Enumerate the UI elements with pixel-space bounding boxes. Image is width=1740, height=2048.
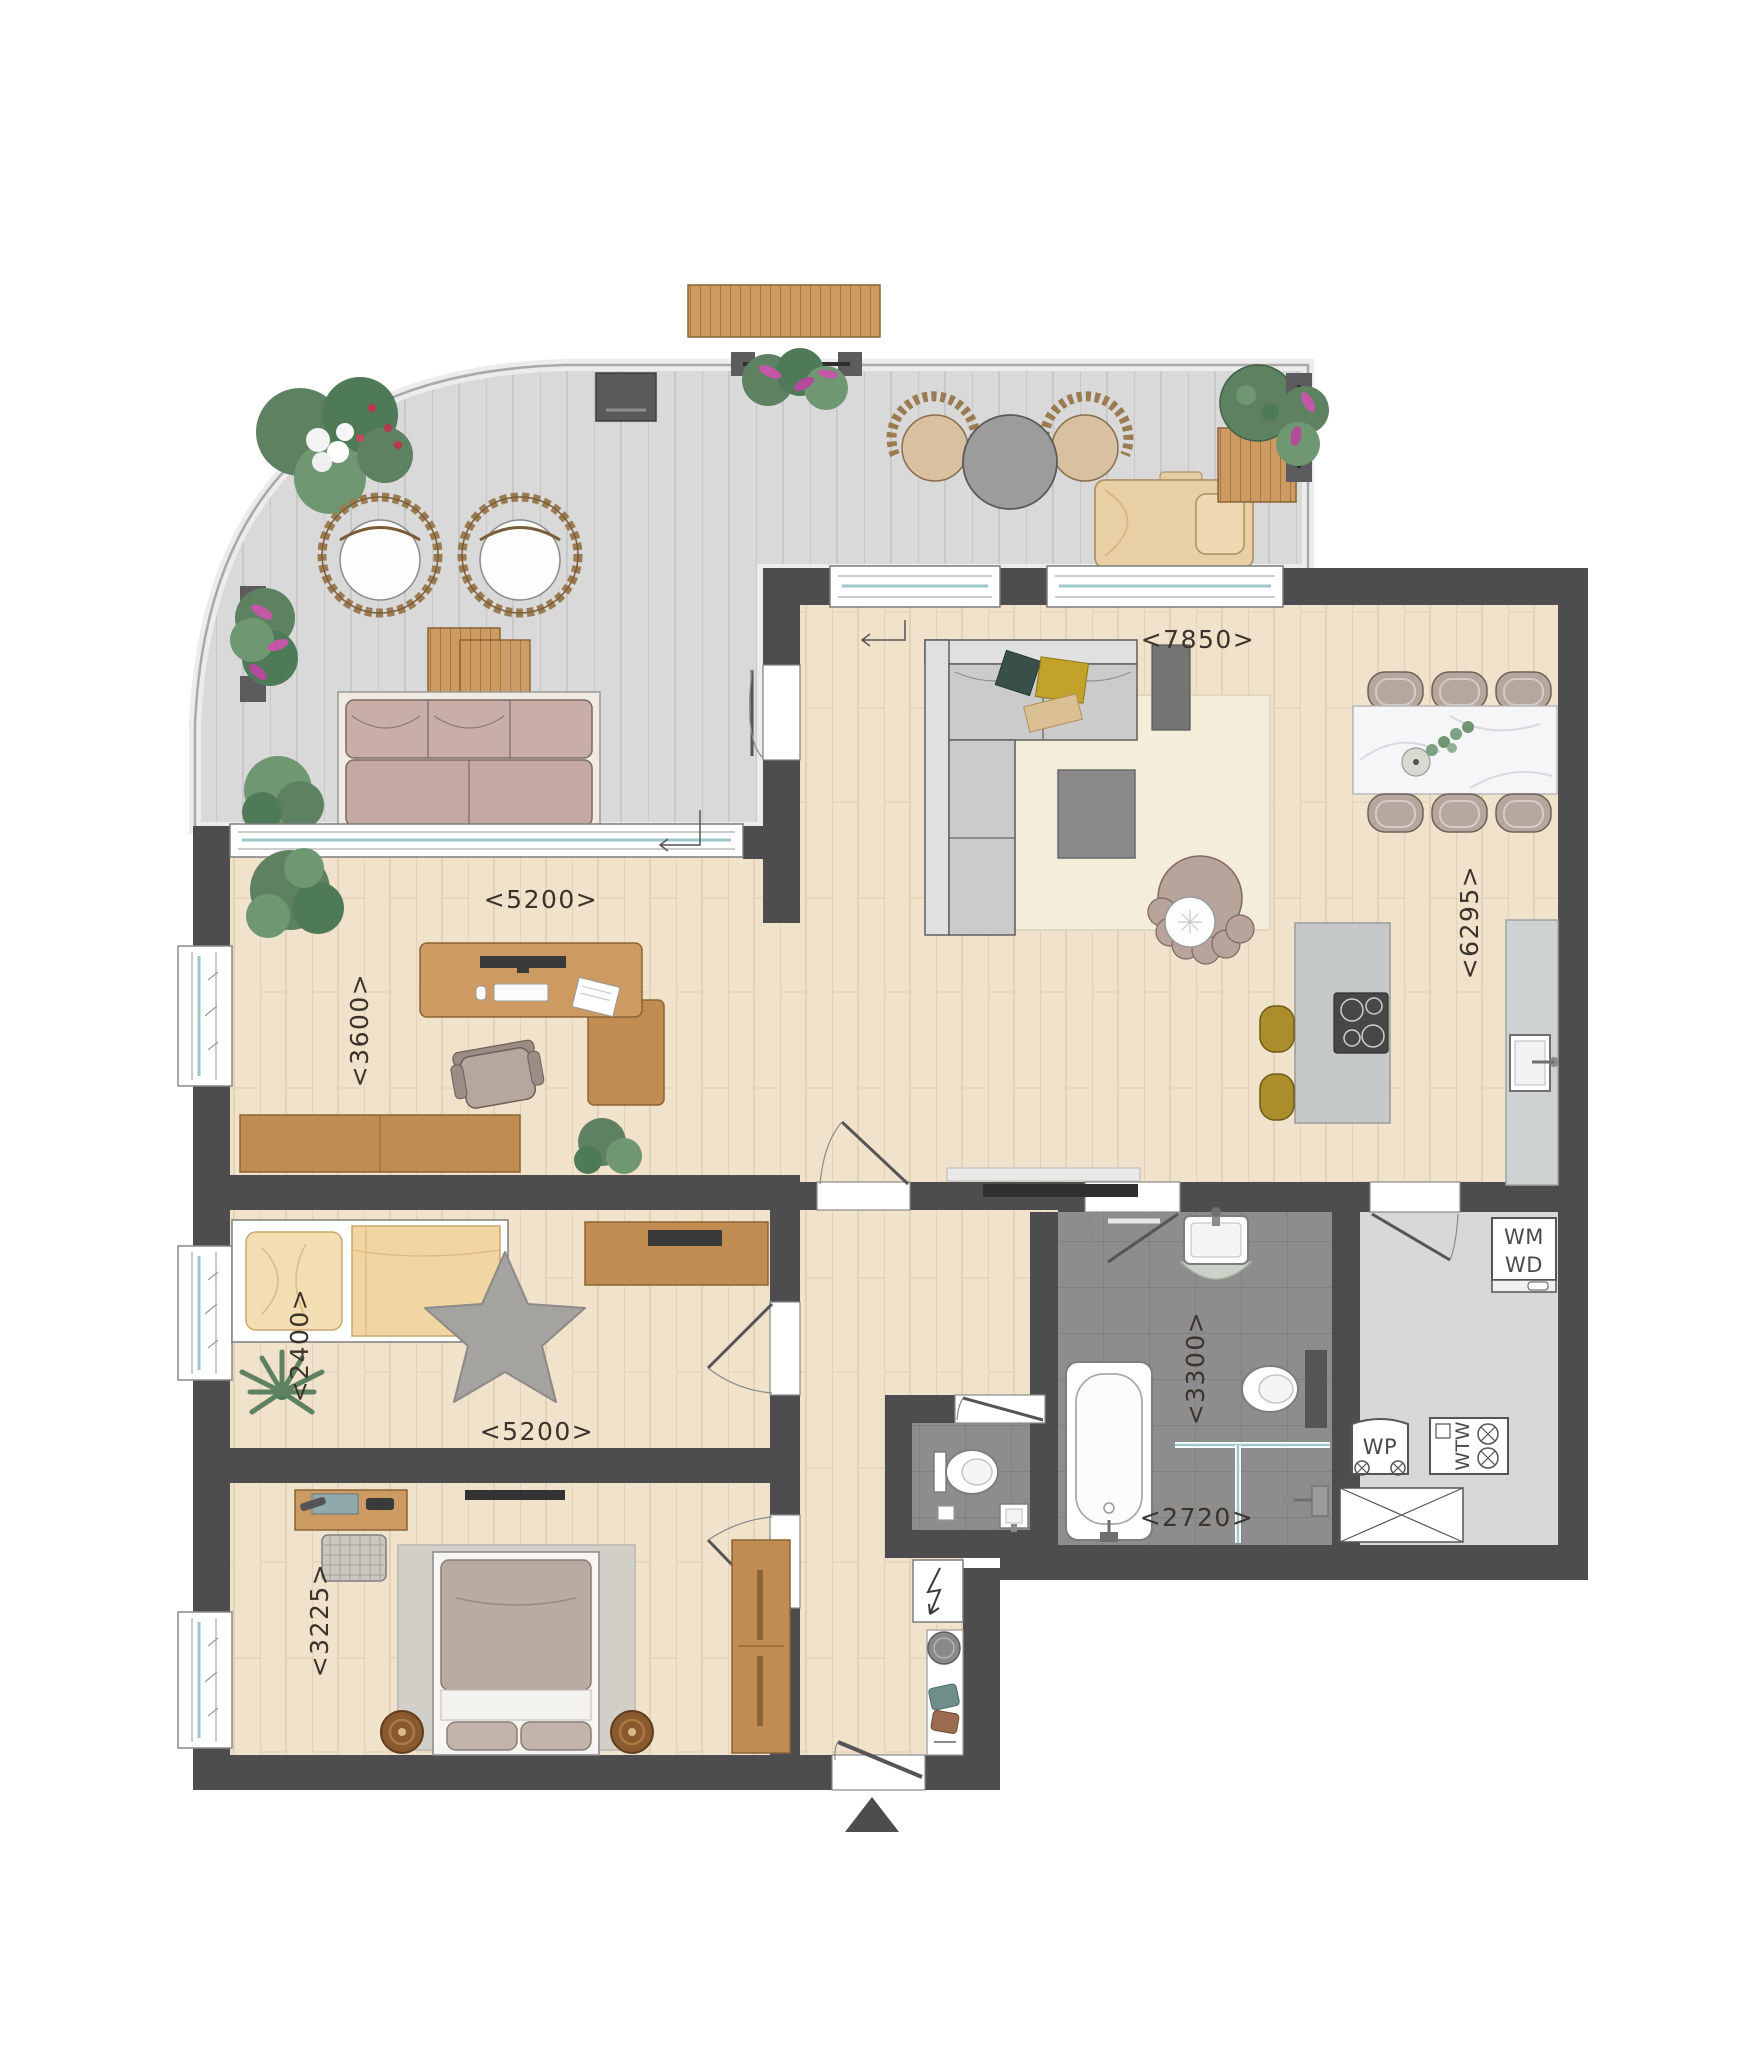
- heat-pump-label: WP: [1363, 1435, 1397, 1459]
- wall-kids-master: [230, 1448, 770, 1483]
- dim-master-depth: <3225>: [305, 1563, 334, 1678]
- kitchen-counter-icon: [1506, 920, 1559, 1185]
- monitor-icon: [480, 956, 566, 968]
- dim-office-depth: <3600>: [345, 973, 374, 1088]
- coat-icon: [930, 1710, 959, 1734]
- dryer-label: WD: [1505, 1253, 1543, 1277]
- wall-bottom-right: [1000, 1545, 1588, 1580]
- pillow-icon: [447, 1722, 517, 1750]
- bbq-box-icon: [596, 373, 656, 421]
- tv-living-icon: [983, 1184, 1138, 1197]
- dim-kids-width: <5200>: [480, 1417, 595, 1446]
- wardrobe-icon: [732, 1540, 790, 1753]
- toilet-paper-icon: [938, 1506, 954, 1520]
- basket-icon: [928, 1632, 960, 1664]
- washer-dryer-unit: WM WD: [1492, 1218, 1556, 1292]
- floor-passage: [763, 923, 800, 1185]
- terrace-wood-screen: [688, 285, 880, 337]
- heat-recovery-unit: WTW: [1430, 1418, 1508, 1474]
- master-desk-icon: [295, 1490, 407, 1530]
- tv-master-icon: [465, 1490, 565, 1500]
- shaft-icon: [1340, 1488, 1463, 1542]
- window-office-left: [178, 946, 232, 1086]
- dining-chairs-top: [1368, 672, 1551, 710]
- wall-bath-left: [1030, 1212, 1058, 1558]
- nightstand-icon: [611, 1711, 653, 1753]
- shower-panel-icon: [1312, 1486, 1328, 1516]
- floor-plan-page: WM WD WP WTW: [0, 0, 1740, 2048]
- meter-cupboard: [913, 1560, 963, 1622]
- coat-rack: [927, 1630, 963, 1755]
- window-living-top-2: [1047, 566, 1283, 607]
- bar-stool-icon: [1260, 1074, 1294, 1120]
- duvet-icon: [441, 1560, 591, 1690]
- kitchen-island-icon: [1295, 923, 1390, 1123]
- wall-bottom: [193, 1755, 832, 1790]
- wc-sink-icon: [1000, 1504, 1028, 1532]
- terrace-slat-box-icon: [460, 640, 530, 697]
- kids-desk-icon: [585, 1222, 768, 1285]
- window-kids-left: [178, 1246, 232, 1380]
- heat-pump-unit: WP: [1352, 1419, 1408, 1475]
- bathroom-sink-icon: [1181, 1207, 1251, 1279]
- window-master-left: [178, 1612, 232, 1748]
- outdoor-sofa-icon: [338, 692, 600, 832]
- heat-recovery-label: WTW: [1452, 1421, 1474, 1470]
- dim-kitchen-depth: <6295>: [1455, 865, 1484, 980]
- pillow-icon: [521, 1722, 591, 1750]
- pillow-icon: [1035, 657, 1088, 703]
- bar-stool-icon: [1260, 1006, 1294, 1052]
- faucet-icon: [1100, 1532, 1118, 1542]
- dining-chairs-bottom: [1368, 794, 1551, 832]
- dim-living-width: <7850>: [1141, 625, 1256, 654]
- floor-hall: [800, 1185, 1058, 1395]
- wall-office-kids: [230, 1175, 770, 1210]
- dim-bath-depth: <3300>: [1181, 1311, 1210, 1426]
- sofa-side-table-icon: [1152, 645, 1190, 730]
- wall-wc-bottom: [885, 1530, 1058, 1558]
- shower-head-icon: [1282, 1494, 1294, 1506]
- laptop-icon: [648, 1230, 722, 1246]
- wall-living-left: [763, 605, 800, 923]
- wall-right: [1558, 568, 1588, 1580]
- mouse-icon: [476, 986, 486, 1000]
- wall-entry-right: [963, 1568, 1000, 1788]
- dim-bath-width: <2720>: [1140, 1503, 1255, 1532]
- dim-office-width: <5200>: [484, 885, 599, 914]
- tv-cabinet: [947, 1168, 1140, 1181]
- toilet-wc-icon: [934, 1450, 998, 1494]
- game-controller-icon: [366, 1498, 394, 1510]
- entrance-arrow-icon: [845, 1797, 899, 1832]
- double-bed-icon: [433, 1552, 599, 1755]
- washer-label: WM: [1504, 1225, 1544, 1249]
- toilet-cistern-wall: [1305, 1350, 1327, 1428]
- dining-table-icon: [1353, 706, 1557, 794]
- dining-area: [1353, 672, 1557, 832]
- coffee-table-icon: [1058, 770, 1135, 858]
- floor-plan-drawing: WM WD WP WTW: [0, 0, 1740, 2048]
- nightstand-icon: [381, 1711, 423, 1753]
- door-wc: [955, 1395, 1045, 1423]
- dim-kids-depth: <2400>: [285, 1288, 314, 1403]
- keyboard-icon: [494, 984, 548, 1001]
